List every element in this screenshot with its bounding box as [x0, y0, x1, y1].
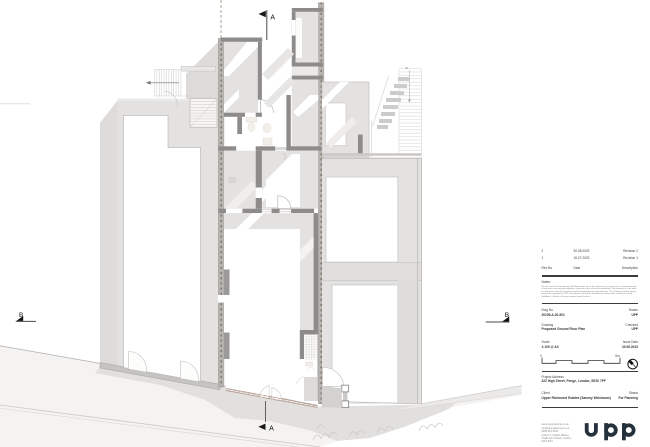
svg-text:5m: 5m [615, 354, 620, 358]
svg-text:up: up [405, 66, 409, 70]
svg-text:A: A [270, 15, 275, 22]
svg-text:A: A [269, 426, 274, 433]
svg-text:0: 0 [540, 354, 542, 358]
svg-text:B: B [505, 312, 509, 319]
svg-text:B: B [19, 312, 23, 319]
